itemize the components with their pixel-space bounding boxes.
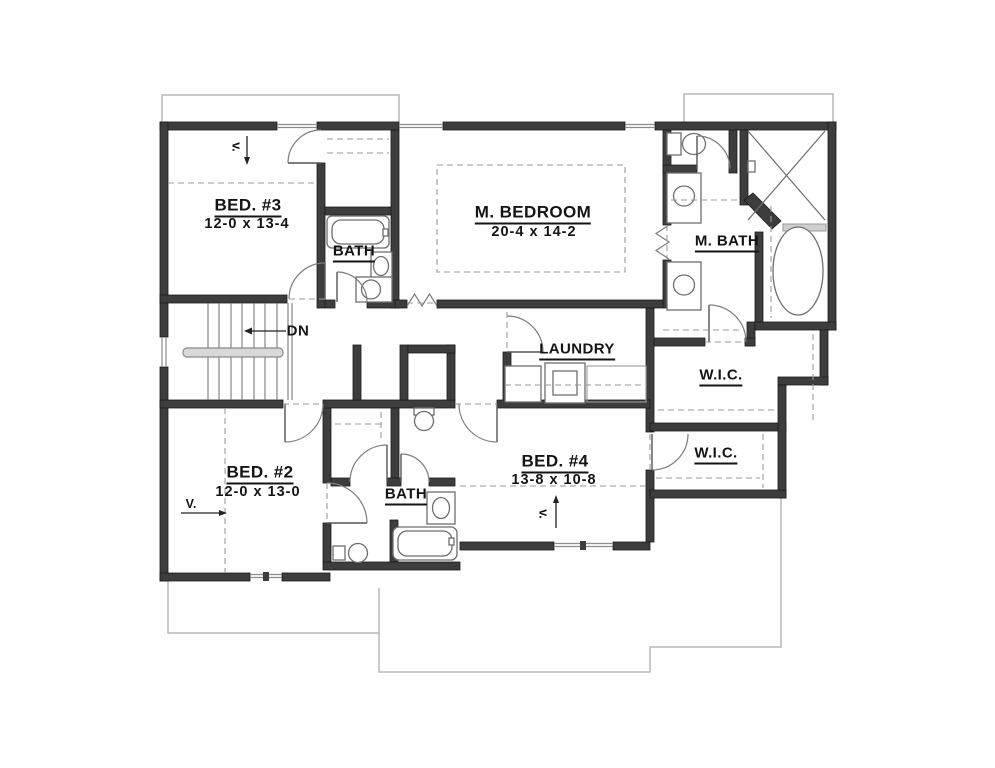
room-label-bed3: BED. #3 bbox=[214, 197, 281, 218]
room-label-wic-lower: W.I.C. bbox=[694, 446, 737, 465]
room-dims-bed2: 12-0 x 13-0 bbox=[215, 485, 300, 500]
door-swing bbox=[288, 130, 321, 163]
window bbox=[625, 125, 655, 128]
vault-marker-bed3: v. bbox=[230, 142, 243, 152]
door-swing bbox=[327, 483, 367, 523]
vault-arrow-bed3 bbox=[244, 136, 250, 165]
door-swing bbox=[652, 434, 688, 470]
room-dims-master-bedroom: 20-4 x 14-2 bbox=[491, 225, 576, 240]
door-swing bbox=[459, 404, 497, 442]
room-label-laundry: LAUNDRY bbox=[539, 342, 615, 361]
dryer bbox=[545, 363, 585, 403]
bathtub bbox=[393, 527, 457, 560]
window bbox=[554, 541, 613, 550]
toilet bbox=[333, 544, 368, 563]
vanity-sink bbox=[427, 492, 455, 524]
window bbox=[162, 337, 166, 367]
room-dims-bed4: 13-8 x 10-8 bbox=[511, 473, 596, 488]
stair-direction-label: DN bbox=[287, 324, 310, 339]
door-swing bbox=[507, 316, 543, 352]
vault-arrow-bed2 bbox=[181, 510, 227, 516]
toilet bbox=[356, 277, 392, 302]
room-label-bed4: BED. #4 bbox=[521, 453, 588, 474]
window bbox=[277, 125, 317, 128]
vault-arrow-bed4 bbox=[553, 495, 559, 528]
room-label-bath-upper: BATH bbox=[333, 244, 375, 263]
door-swing bbox=[401, 454, 429, 482]
washer bbox=[505, 366, 541, 402]
door-swing bbox=[709, 305, 746, 342]
door-swing bbox=[285, 404, 323, 442]
vanity-sink bbox=[667, 173, 701, 223]
room-label-bed2: BED. #2 bbox=[226, 464, 293, 485]
floor-plan-drawing bbox=[0, 0, 995, 768]
toilet bbox=[414, 408, 434, 431]
bifold-door bbox=[407, 294, 437, 306]
room-label-bath-lower: BATH bbox=[385, 487, 427, 506]
window bbox=[250, 572, 282, 581]
soaking-tub bbox=[773, 227, 823, 315]
vault-marker-bed2: V. bbox=[186, 498, 197, 511]
stairs bbox=[183, 303, 292, 400]
laundry-counter bbox=[587, 366, 646, 402]
vanity-sink bbox=[667, 262, 701, 310]
room-label-master-bedroom: M. BEDROOM bbox=[475, 204, 591, 225]
stair-rail bbox=[183, 348, 283, 357]
window bbox=[399, 125, 443, 128]
door-swing bbox=[350, 445, 387, 482]
vault-marker-bed4: v. bbox=[537, 509, 550, 519]
room-label-wic-upper: W.I.C. bbox=[699, 368, 742, 387]
floor-plan-canvas: BED. #3 12-0 x 13-4 BATH M. BEDROOM 20-4… bbox=[0, 0, 995, 768]
room-dims-bed3: 12-0 x 13-4 bbox=[204, 217, 289, 232]
room-label-master-bath: M. BATH bbox=[695, 234, 759, 253]
